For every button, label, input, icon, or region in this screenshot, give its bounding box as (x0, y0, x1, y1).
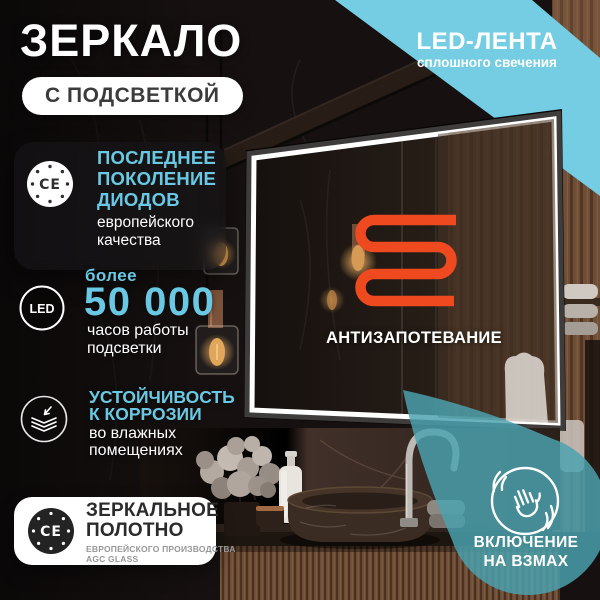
feature-diodes-title-line: ПОКОЛЕНИЕ (97, 168, 216, 189)
svg-text:CE: CE (40, 524, 62, 540)
corrosion-layers-icon (20, 395, 68, 443)
reflected-bathrobe (505, 353, 548, 425)
ce-dark-icon: CE (28, 508, 74, 554)
hours-subtitle: часов работы подсветки (87, 322, 189, 357)
corrosion-title-line: К КОРРОЗИИ (89, 406, 235, 423)
feature-diodes-title-line: ПОСЛЕДНЕЕ (97, 147, 216, 168)
corrosion-sub-line: во влажных (89, 425, 183, 442)
svg-text:CE: CE (39, 177, 61, 193)
heating-coil-icon (348, 212, 464, 312)
antifog-label: АНТИЗАПОТЕВАНИЕ (326, 329, 482, 348)
led-circle-icon: LED (19, 285, 65, 331)
towel-roll (562, 304, 598, 318)
corrosion-subtitle: во влажных помещениях (89, 425, 183, 459)
wave-on-label: ВКЛЮЧЕНИЕ НА ВЗМАХ (452, 533, 600, 571)
cosmetic-jar (256, 506, 284, 526)
corrosion-sub-line: помещениях (89, 442, 183, 459)
ce-diode-icon: CE (27, 161, 73, 207)
ribbon-title: LED-ЛЕНТА (407, 29, 567, 55)
svg-text:LED: LED (30, 302, 55, 316)
corrosion-title: УСТОЙЧИВОСТЬ К КОРРОЗИИ (89, 389, 235, 422)
page-title: ЗЕРКАЛО (20, 18, 242, 63)
glass-title-line: ЗЕРКАЛЬНОЕ (86, 501, 219, 521)
wave-on-line: НА ВЗМАХ (452, 552, 600, 571)
hours-value: 50 000 (84, 282, 215, 322)
subtitle-badge: С ПОДСВЕТКОЙ (22, 77, 243, 115)
glass-title-line: ПОЛОТНО (86, 521, 219, 541)
ribbon-text: LED-ЛЕНТА сплошного свечения (407, 29, 567, 70)
wave-on-line: ВКЛЮЧЕНИЕ (452, 533, 600, 552)
glass-subtitle: ЕВРОПЕЙСКОГО ПРОИЗВОДСТВА AGC GLASS (86, 544, 236, 564)
feature-diodes-title: ПОСЛЕДНЕЕ ПОКОЛЕНИЕ ДИОДОВ (97, 147, 216, 210)
vase (224, 502, 260, 536)
feature-diodes-sub-line: качества (97, 232, 194, 250)
towel-roll (562, 322, 598, 335)
glass-sub-line: AGC GLASS (86, 554, 236, 564)
hours-sub-line: подсветки (87, 340, 189, 358)
subtitle-badge-label: С ПОДСВЕТКОЙ (45, 84, 220, 108)
ribbon-subtitle: сплошного свечения (407, 55, 567, 70)
glass-title: ЗЕРКАЛЬНОЕ ПОЛОТНО (86, 501, 219, 541)
glass-sub-line: ЕВРОПЕЙСКОГО ПРОИЗВОДСТВА (86, 544, 236, 554)
feature-diodes-title-line: ДИОДОВ (97, 189, 216, 210)
feature-diodes-subtitle: европейского качества (97, 214, 194, 250)
feature-diodes-sub-line: европейского (97, 214, 194, 232)
hours-sub-line: часов работы (87, 322, 189, 340)
product-banner: ЗЕРКАЛО С ПОДСВЕТКОЙ LED-ЛЕНТА сплошного… (0, 0, 600, 600)
towel-roll (562, 284, 598, 299)
